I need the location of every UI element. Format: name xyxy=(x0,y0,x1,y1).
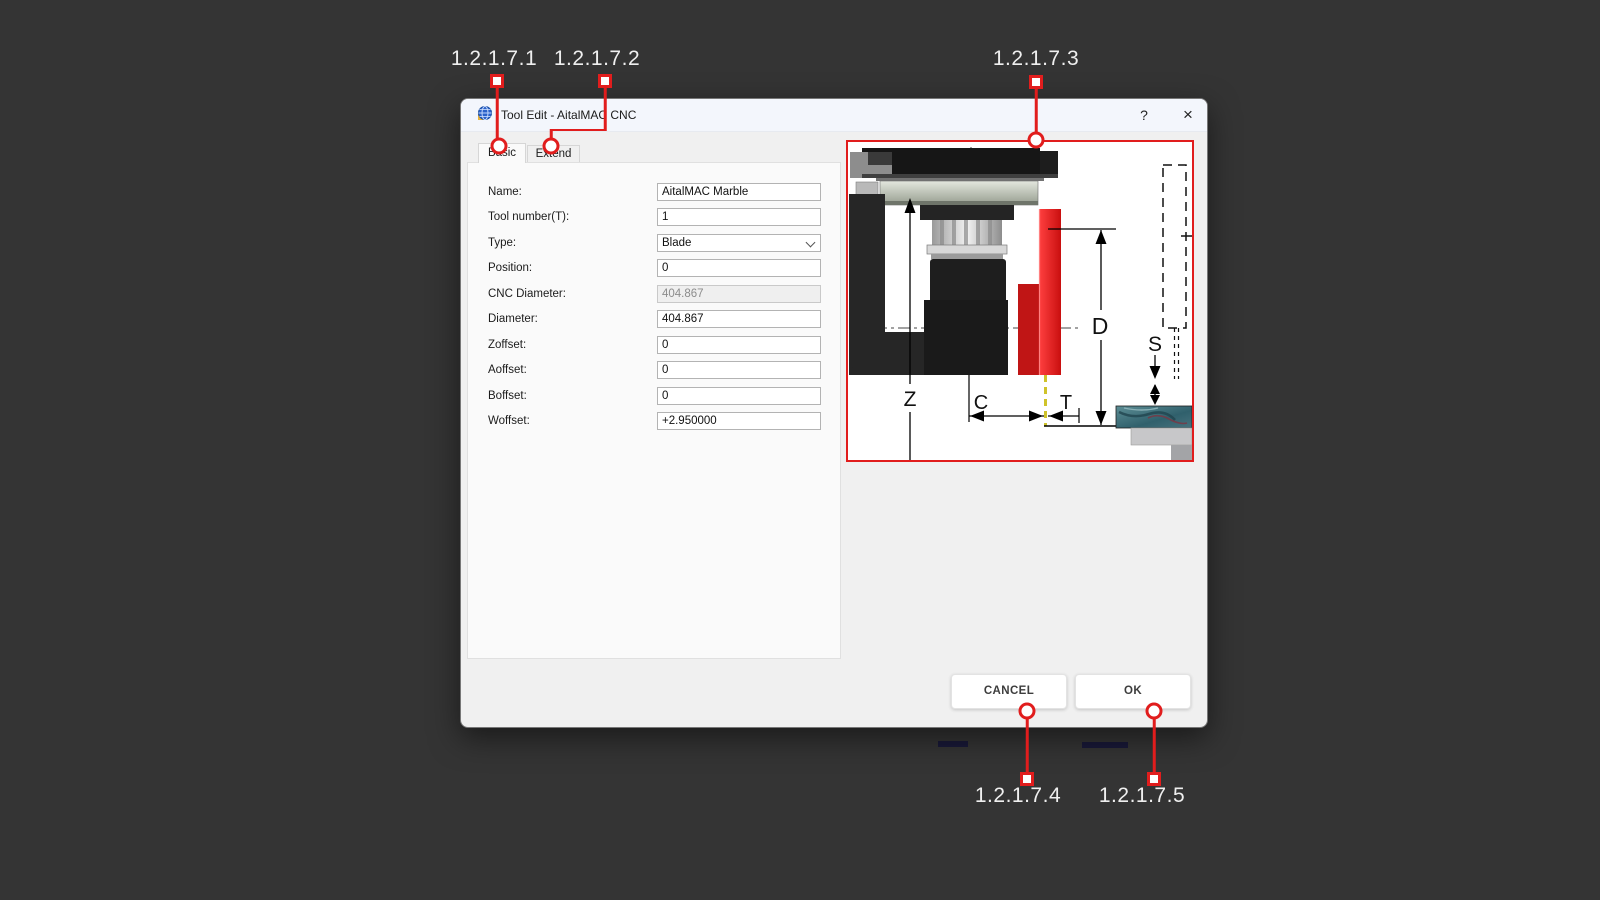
tool-diagram-drawing: Z D C T S xyxy=(848,142,1192,460)
help-button[interactable]: ? xyxy=(1131,99,1157,131)
annotation-line-2 xyxy=(604,87,607,131)
annotation-line-1 xyxy=(496,87,499,139)
field-label-tool-number: Tool number(T): xyxy=(488,208,569,227)
annotation-line-4 xyxy=(1026,719,1029,772)
annotation-line-2 xyxy=(550,129,606,132)
annotation-circle-2 xyxy=(543,138,560,155)
field-label-type: Type: xyxy=(488,234,516,253)
diameter-field[interactable] xyxy=(657,310,821,328)
annotation-circle-3 xyxy=(1028,132,1045,149)
type-select-value: Blade xyxy=(662,237,691,249)
annotation-label-5: 1.2.1.7.5 xyxy=(1099,784,1185,808)
annotation-circle-5 xyxy=(1146,703,1163,720)
annotation-square-5 xyxy=(1147,772,1161,786)
field-label-aoffset: Aoffset: xyxy=(488,361,527,380)
annotation-line-3 xyxy=(1035,88,1038,134)
dialog-titlebar[interactable]: Tool Edit - AitalMAC CNC ? × xyxy=(461,99,1207,132)
form-row: Tool number(T): xyxy=(468,208,840,227)
field-label-diameter: Diameter: xyxy=(488,310,538,329)
dim-label-c: C xyxy=(974,392,988,414)
globe-icon xyxy=(477,105,493,126)
type-select[interactable]: Blade xyxy=(657,234,821,252)
annotation-circle-4 xyxy=(1019,703,1036,720)
field-label-zoffset: Zoffset: xyxy=(488,336,526,355)
woffset-field[interactable] xyxy=(657,412,821,430)
dim-label-z: Z xyxy=(904,388,917,411)
chevron-down-icon xyxy=(806,238,816,248)
form-row: Boffset: xyxy=(468,387,840,406)
dim-label-t: T xyxy=(1060,392,1072,414)
background-artifact xyxy=(938,741,968,747)
form-row: Zoffset: xyxy=(468,336,840,355)
field-label-position: Position: xyxy=(488,259,532,278)
annotation-label-1: 1.2.1.7.1 xyxy=(451,47,537,71)
cancel-button[interactable]: CANCEL xyxy=(951,674,1067,709)
name-field[interactable] xyxy=(657,183,821,201)
annotation-square-3 xyxy=(1029,75,1043,89)
ok-button[interactable]: OK xyxy=(1075,674,1191,709)
tool-diagram: Z D C T S xyxy=(846,140,1194,462)
position-field[interactable] xyxy=(657,259,821,277)
zoffset-field[interactable] xyxy=(657,336,821,354)
form-row: Position: xyxy=(468,259,840,278)
aoffset-field[interactable] xyxy=(657,361,821,379)
field-label-cnc-diameter: CNC Diameter: xyxy=(488,285,566,304)
annotation-circle-1 xyxy=(491,138,508,155)
tool-number-field[interactable] xyxy=(657,208,821,226)
annotation-square-4 xyxy=(1020,772,1034,786)
annotation-label-4: 1.2.1.7.4 xyxy=(975,784,1061,808)
form-row: Diameter: xyxy=(468,310,840,329)
field-label-name: Name: xyxy=(488,183,522,202)
annotation-label-3: 1.2.1.7.3 xyxy=(993,47,1079,71)
form-row: Type: Blade xyxy=(468,234,840,253)
screenshot-stage: Tool Edit - AitalMAC CNC ? × Basic Exten… xyxy=(0,0,1600,900)
dialog-title: Tool Edit - AitalMAC CNC xyxy=(501,108,636,122)
cnc-diameter-field xyxy=(657,285,821,303)
form-row: CNC Diameter: xyxy=(468,285,840,304)
boffset-field[interactable] xyxy=(657,387,821,405)
annotation-label-2: 1.2.1.7.2 xyxy=(554,47,640,71)
annotation-line-5 xyxy=(1153,719,1156,772)
annotation-square-2 xyxy=(598,74,612,88)
close-icon[interactable]: × xyxy=(1175,99,1201,131)
background-artifact xyxy=(1082,742,1128,748)
form-row: Woffset: xyxy=(468,412,840,431)
tool-edit-dialog: Tool Edit - AitalMAC CNC ? × Basic Exten… xyxy=(460,98,1208,728)
field-label-woffset: Woffset: xyxy=(488,412,530,431)
basic-tab-panel: Name: Tool number(T): Type: Blade Positi… xyxy=(467,162,841,659)
dim-label-d: D xyxy=(1092,313,1109,339)
annotation-square-1 xyxy=(490,74,504,88)
field-label-boffset: Boffset: xyxy=(488,387,527,406)
dim-label-s: S xyxy=(1148,333,1162,356)
form-row: Name: xyxy=(468,183,840,202)
form-row: Aoffset: xyxy=(468,361,840,380)
